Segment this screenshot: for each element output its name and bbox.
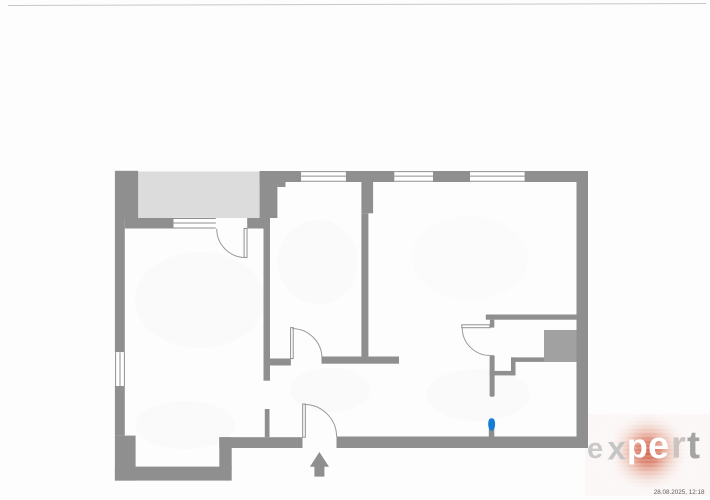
svg-text:x: x bbox=[608, 430, 627, 467]
svg-text:t: t bbox=[687, 424, 700, 467]
svg-text:p: p bbox=[627, 428, 648, 466]
svg-text:28.08.2025, 12:18: 28.08.2025, 12:18 bbox=[654, 489, 705, 496]
svg-text:e: e bbox=[587, 433, 603, 465]
svg-text:e: e bbox=[648, 425, 669, 467]
svg-text:r: r bbox=[671, 425, 686, 467]
